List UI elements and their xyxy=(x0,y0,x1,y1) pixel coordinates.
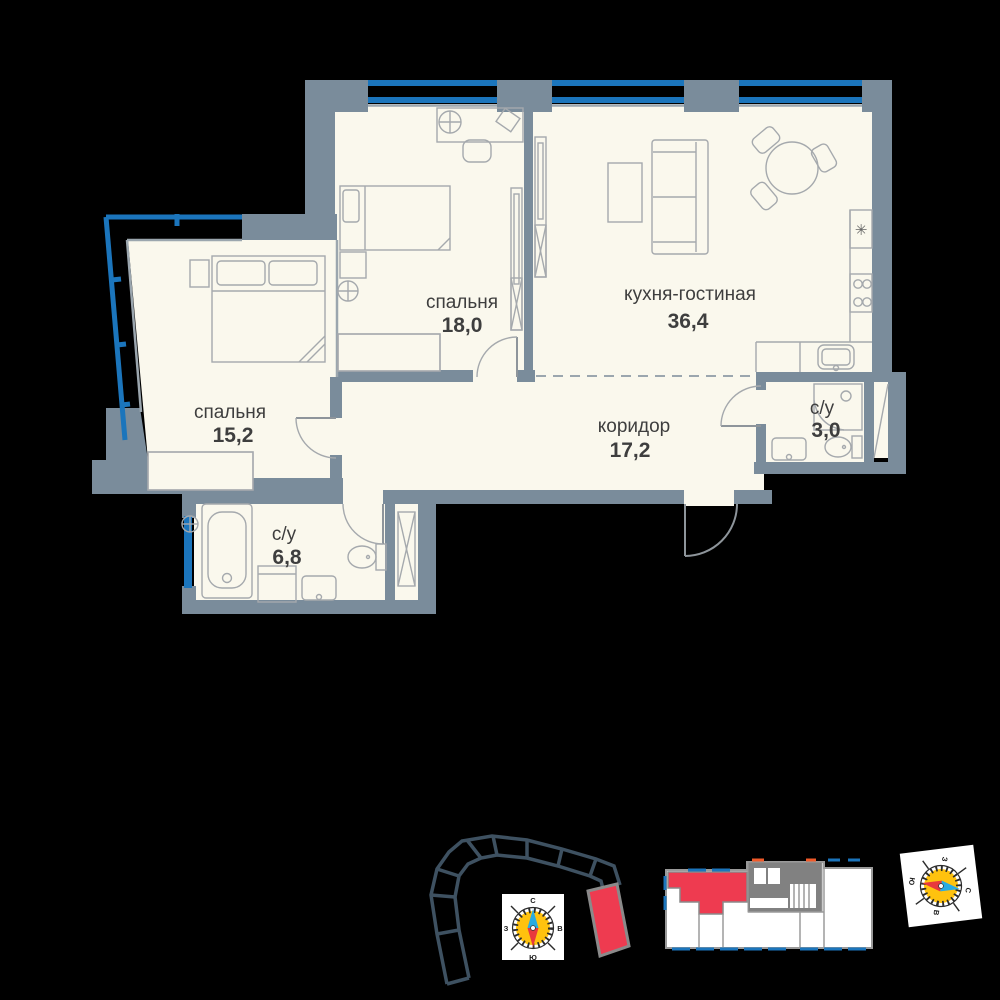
room-name-bathroom-small: с/у xyxy=(810,398,835,419)
lamp-icon xyxy=(338,281,358,301)
room-area-bedroom-2: 15,2 xyxy=(213,424,254,447)
room-name-bedroom-2: спальня xyxy=(194,402,266,423)
room-name-kitchen-living: кухня-гостиная xyxy=(624,284,756,305)
wardrobe xyxy=(338,334,440,371)
room-area-bedroom-1: 18,0 xyxy=(442,314,483,337)
room-name-bathroom-large: с/у xyxy=(272,524,297,545)
room-area-kitchen-living: 36,4 xyxy=(668,310,709,333)
lamp-icon xyxy=(182,516,198,532)
lamp-icon xyxy=(439,111,461,133)
bathroom-window xyxy=(184,516,192,588)
floor-overview xyxy=(665,860,872,949)
room-area-corridor: 17,2 xyxy=(610,439,651,462)
room-area-bathroom-small: 3,0 xyxy=(811,419,840,442)
floor-plan-image: С Ю З В xyxy=(0,0,1000,1000)
stair-core xyxy=(748,862,822,912)
fridge-glyph: ✳ xyxy=(855,222,868,239)
north-compass xyxy=(900,845,982,927)
screenshot-canvas: С Ю З В xyxy=(0,0,1000,1000)
room-name-bedroom-1: спальня xyxy=(426,292,498,313)
wardrobe xyxy=(148,452,253,490)
room-area-bathroom-large: 6,8 xyxy=(272,546,302,569)
room-name-corridor: коридор xyxy=(598,416,671,437)
